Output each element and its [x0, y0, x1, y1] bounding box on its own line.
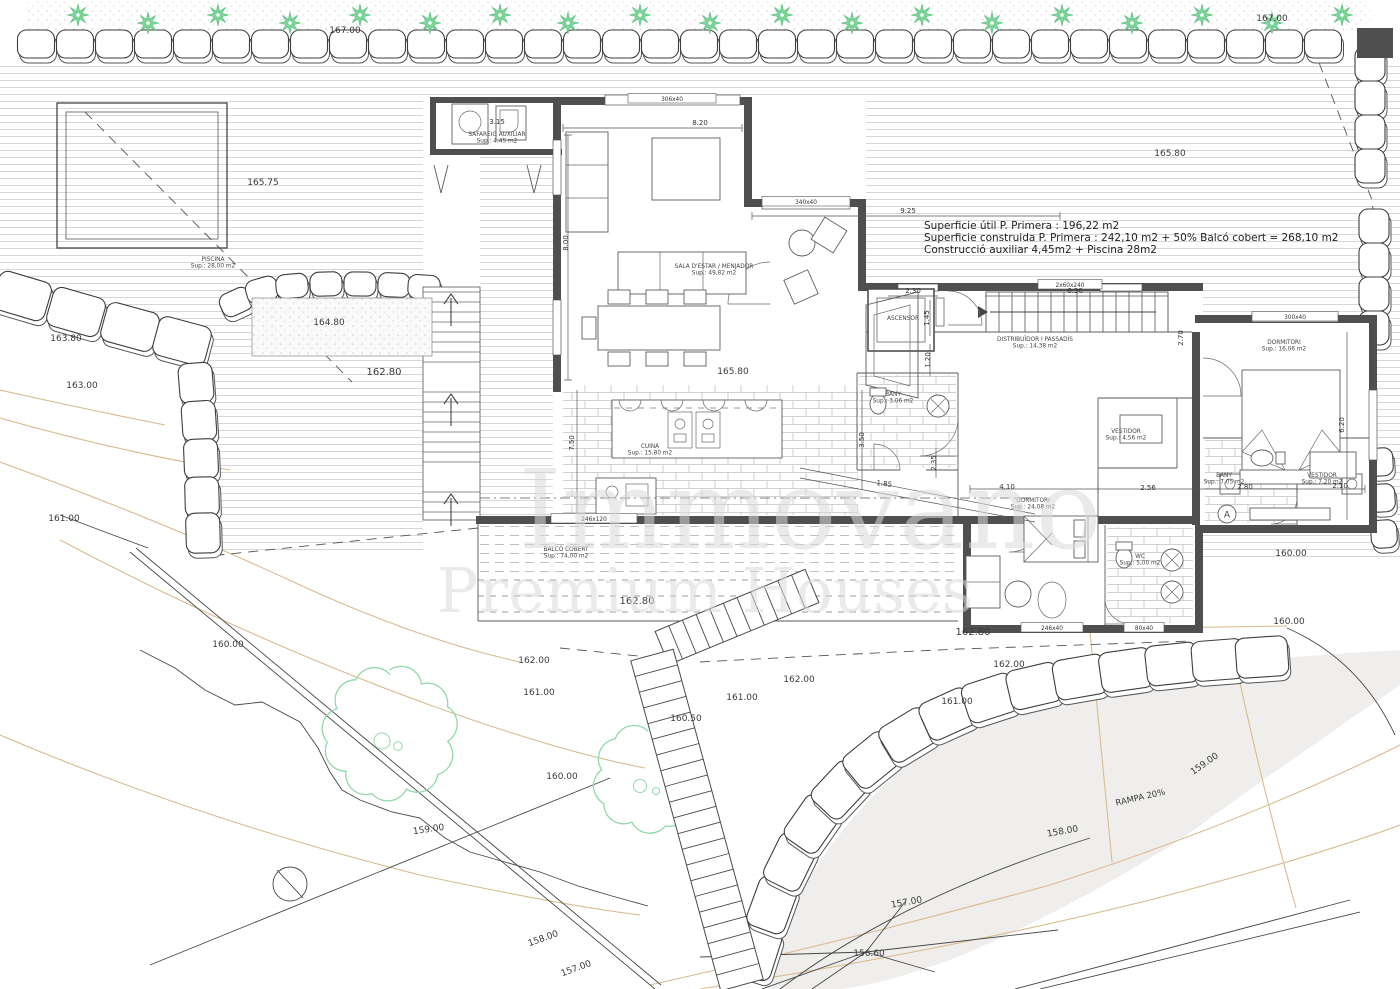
- stone: [1359, 243, 1389, 277]
- window-tag-label: 306x40: [661, 97, 683, 103]
- room-label: SAFAREIG AUXILIARSup.: 4,45 m2: [468, 132, 525, 145]
- stone: [642, 30, 679, 58]
- stone: [181, 400, 218, 442]
- coffee-table: [652, 138, 720, 200]
- elevation-label: 165.80: [717, 367, 749, 377]
- elevation-label: 167.00: [329, 26, 361, 36]
- dimension-label: 9.25: [900, 207, 916, 215]
- stone: [876, 30, 913, 58]
- plant-center: [498, 13, 502, 17]
- elevation-label: 162.80: [956, 627, 991, 638]
- plant-center: [216, 13, 220, 17]
- stone: [1355, 81, 1385, 115]
- plant-center: [850, 21, 854, 25]
- stone: [603, 30, 640, 58]
- stone: [369, 30, 406, 58]
- stone: [1071, 30, 1108, 58]
- plant-center: [990, 21, 994, 25]
- bench: [1250, 508, 1330, 520]
- stone: [1355, 149, 1385, 183]
- elevation-label: 160.00: [1275, 549, 1307, 559]
- elevation-label: 162.00: [783, 675, 815, 685]
- stone: [798, 30, 835, 58]
- elevation-label: 160.50: [670, 714, 702, 724]
- stone: [177, 362, 214, 405]
- tree-trunk: [634, 780, 647, 793]
- elevation-label: 164.80: [313, 318, 345, 328]
- interior-staircase: [978, 292, 1168, 332]
- gravel-band: [25, 2, 1370, 32]
- elevation-label: 160.00: [1273, 617, 1305, 627]
- elevation-label: 165.75: [247, 178, 279, 188]
- break-symbol: [434, 165, 448, 193]
- sofa: [566, 132, 608, 232]
- window-tag-label: 340x40: [795, 200, 817, 206]
- plant-center: [428, 21, 432, 25]
- elevation-label: 161.00: [523, 688, 555, 698]
- room-label: ASCENSOR: [887, 316, 919, 322]
- dimension-label: 2.70: [1177, 330, 1185, 346]
- stone: [377, 272, 410, 297]
- site-plan: A 306x40340x402x60x240300x40246x120246x4…: [0, 0, 1400, 989]
- stone: [57, 30, 94, 58]
- dimension-label: 3.15: [489, 118, 505, 126]
- plant-center: [638, 13, 642, 17]
- stone: [344, 272, 376, 296]
- dimension-label: 2.56: [1140, 484, 1156, 492]
- wc-floor: [1107, 527, 1193, 623]
- dimension-label: 6.30: [1067, 287, 1083, 295]
- stone: [1110, 30, 1147, 58]
- dimension-label: 8.20: [692, 119, 708, 127]
- annotation-line-2: Superficie construida P. Primera : 242,1…: [924, 232, 1338, 244]
- elevation-label: 161.00: [726, 693, 758, 703]
- stone: [1188, 30, 1225, 58]
- stone: [720, 30, 757, 58]
- plant-center: [1200, 13, 1204, 17]
- stone: [310, 272, 343, 297]
- dimension-label: 1.45: [923, 310, 931, 326]
- floor-plan-drawing: A 306x40340x402x60x240300x40246x120246x4…: [0, 0, 1400, 989]
- plant-center: [1340, 13, 1344, 17]
- stone: [1227, 30, 1264, 58]
- elevation-label: 160.00: [212, 640, 244, 650]
- annotation-line-3: Construcció auxiliar 4,45m2 + Piscina 28…: [924, 244, 1157, 256]
- elevation-label: 167.00: [1256, 14, 1288, 24]
- plant-center: [288, 21, 292, 25]
- elevation-label: 156.60: [853, 949, 885, 959]
- dimension-label: 2.80: [1237, 483, 1253, 491]
- plant-center: [76, 13, 80, 17]
- stone: [1032, 30, 1069, 58]
- stone: [915, 30, 952, 58]
- elevation-label: 165.80: [1154, 149, 1186, 159]
- stone: [525, 30, 562, 58]
- elevation-label: 159.00: [412, 823, 445, 837]
- elevation-label: 158.00: [527, 929, 560, 949]
- tree-trunk: [394, 742, 403, 751]
- window-tag-label: 246x40: [1041, 626, 1063, 632]
- plant-center: [1060, 13, 1064, 17]
- stone: [96, 30, 133, 58]
- stone: [213, 30, 250, 58]
- stone: [275, 273, 309, 300]
- dimension-label: 8.00: [562, 235, 570, 251]
- stone: [759, 30, 796, 58]
- stone: [1149, 30, 1186, 58]
- stone: [681, 30, 718, 58]
- watermark-line-2: Premium Houses: [437, 554, 974, 627]
- ac-letter: A: [1224, 511, 1231, 521]
- elevation-label: 161.00: [48, 514, 80, 524]
- plant-center: [780, 13, 784, 17]
- stone: [486, 30, 523, 58]
- plant-center: [566, 21, 570, 25]
- window-tag-label: 300x40: [1284, 315, 1306, 321]
- stone: [184, 477, 219, 518]
- stone: [1355, 115, 1385, 149]
- dimension-label: 1.20: [924, 352, 932, 368]
- room-label: DORMITORISup.: 16,06 m2: [1262, 340, 1307, 353]
- toilet: [1251, 450, 1273, 466]
- stone: [18, 30, 55, 58]
- stone: [1266, 30, 1303, 58]
- dining-table: [598, 306, 720, 350]
- tree-trunk: [374, 733, 390, 749]
- elevation-label: 163.80: [50, 334, 82, 344]
- plant-center: [358, 13, 362, 17]
- stone: [837, 30, 874, 58]
- stone: [1359, 277, 1389, 311]
- plant-center: [146, 21, 150, 25]
- stone: [993, 30, 1030, 58]
- dimension-label: 2.30: [905, 287, 921, 295]
- elevation-label: 162.00: [993, 660, 1025, 670]
- elevation-label: 162.00: [518, 656, 550, 666]
- stone: [183, 438, 219, 479]
- stone: [1235, 635, 1290, 678]
- stone: [291, 30, 328, 58]
- tree-trunk: [653, 788, 660, 795]
- plant-center: [920, 13, 924, 17]
- plant-center: [1130, 21, 1134, 25]
- dimension-label: 2.10: [1332, 482, 1348, 490]
- stone: [954, 30, 991, 58]
- stone: [447, 30, 484, 58]
- window-tag-label: 80x40: [1135, 626, 1153, 632]
- dimension-label: 6.20: [1338, 417, 1346, 433]
- tree-canopy: [322, 666, 457, 801]
- stone: [185, 513, 220, 554]
- elevation-label: 163.00: [66, 381, 98, 391]
- pouf: [1005, 581, 1031, 607]
- stone: [1305, 30, 1342, 58]
- stone: [252, 30, 289, 58]
- stone: [564, 30, 601, 58]
- annotation-line-1: Superficie útil P. Primera : 196,22 m2: [924, 220, 1119, 232]
- room-label: VESTIDORSup.: 4,56 m2: [1106, 429, 1147, 442]
- elevation-label: 162.80: [367, 367, 402, 378]
- elevation-label: 161.00: [941, 697, 973, 707]
- corner-pillar: [1357, 28, 1393, 58]
- stone: [135, 30, 172, 58]
- side-table: [789, 230, 815, 256]
- plant-center: [708, 21, 712, 25]
- elevation-label: 157.00: [560, 959, 593, 979]
- elevation-label: 160.00: [546, 772, 578, 782]
- stone: [174, 30, 211, 58]
- stone: [408, 30, 445, 58]
- stone: [1359, 209, 1389, 243]
